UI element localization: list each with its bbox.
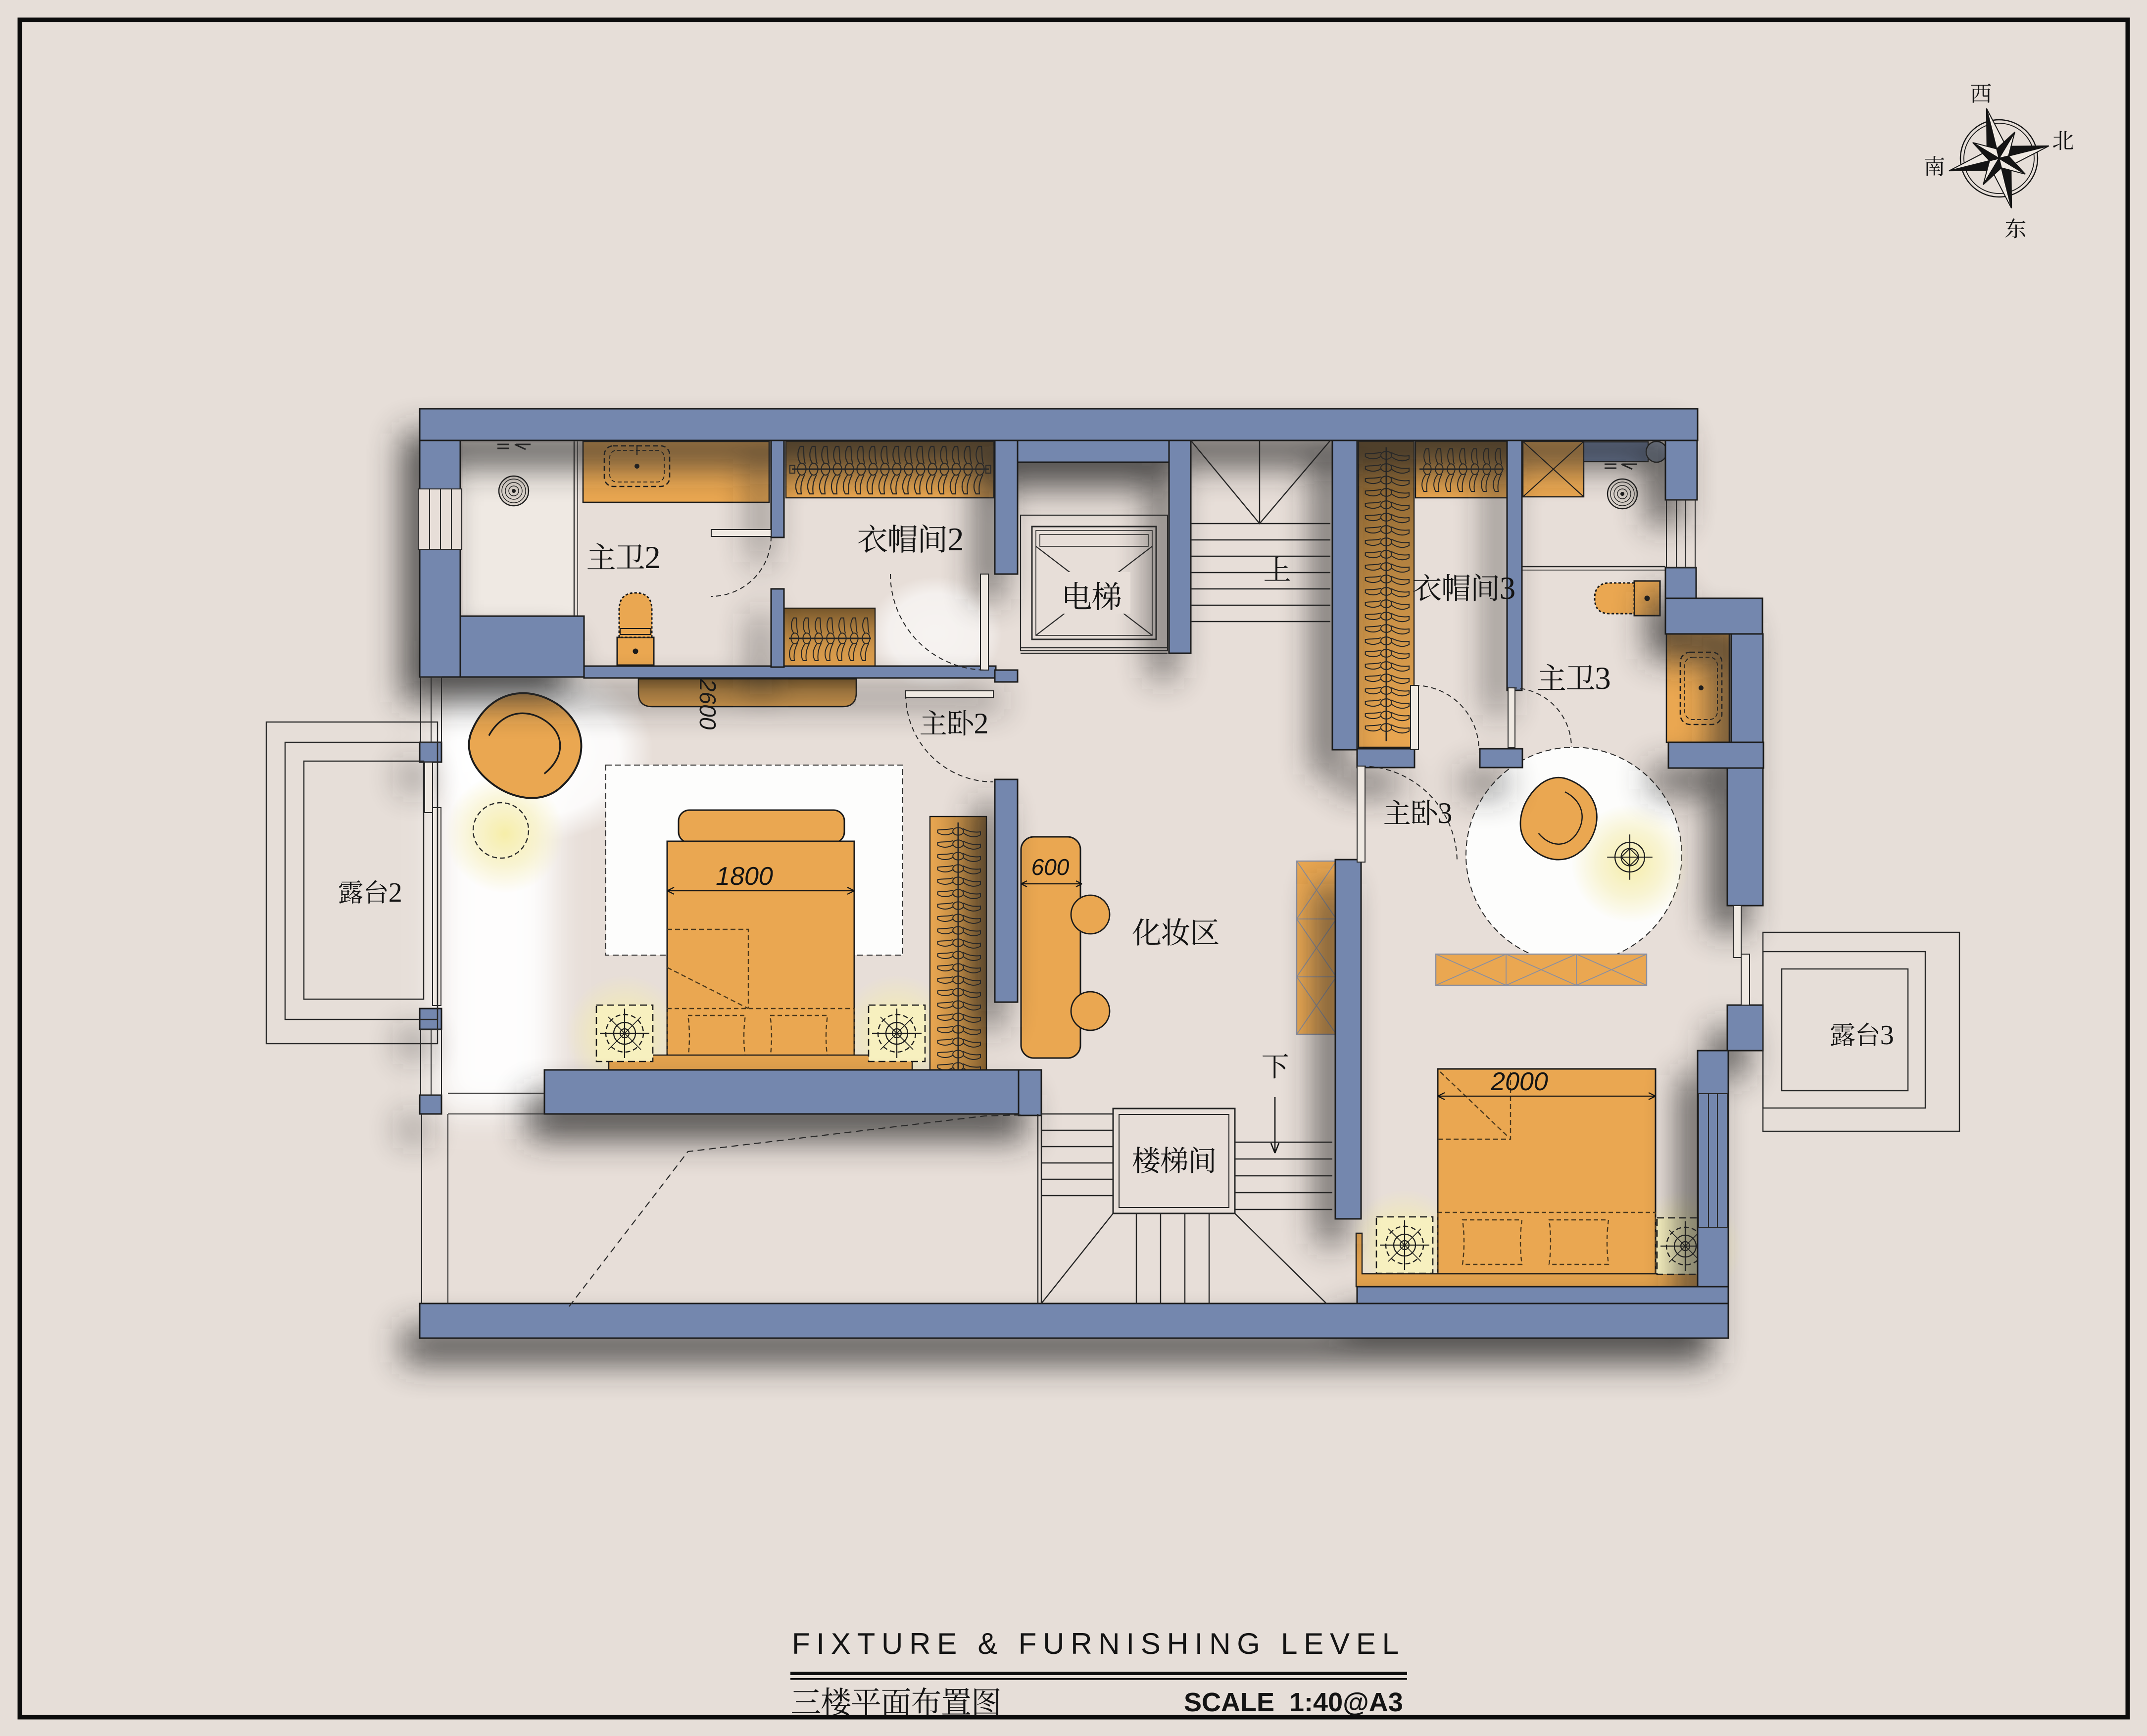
svg-text:3: 3 — [1880, 1020, 1894, 1051]
svg-text:1800: 1800 — [716, 862, 773, 891]
svg-text:2: 2 — [947, 521, 964, 558]
svg-text:2600: 2600 — [695, 678, 721, 730]
svg-text:SCALE 1:40@A3: SCALE 1:40@A3 — [1184, 1688, 1403, 1717]
svg-text:2: 2 — [389, 877, 402, 908]
svg-text:2: 2 — [644, 540, 661, 576]
svg-text:600: 600 — [1031, 854, 1070, 880]
svg-text:2: 2 — [974, 707, 989, 740]
svg-text:3: 3 — [1438, 797, 1453, 829]
svg-text:FIXTURE & FURNISHING LEVEL: FIXTURE & FURNISHING LEVEL — [792, 1627, 1406, 1660]
svg-text:2000: 2000 — [1490, 1067, 1548, 1096]
svg-text:3: 3 — [1595, 661, 1611, 696]
svg-text:3: 3 — [1500, 571, 1516, 606]
